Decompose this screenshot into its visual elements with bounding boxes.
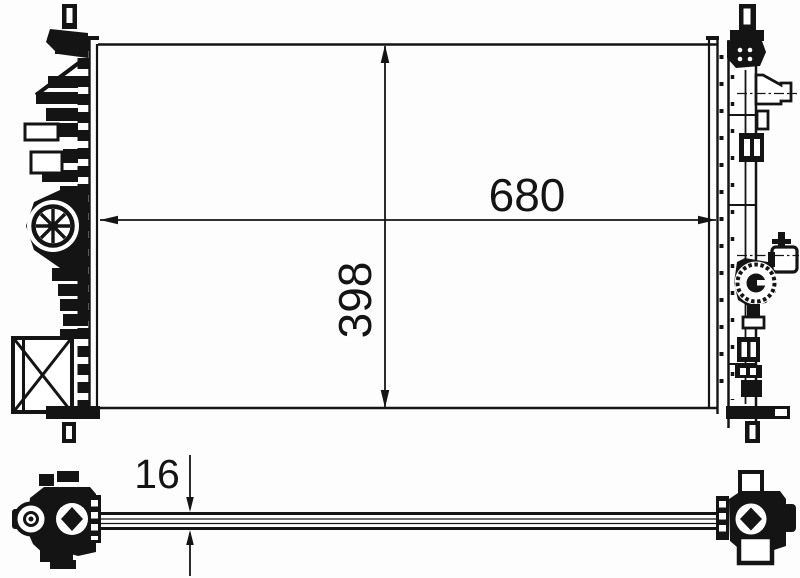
right-cap-port <box>783 504 796 532</box>
height-dimension: 398 <box>329 45 389 408</box>
filler-cap-housing <box>727 41 766 68</box>
right-bracket-a <box>739 133 764 162</box>
right-tank-tab-b <box>743 317 764 328</box>
left-cap-port <box>16 504 47 535</box>
width-dimension-label: 680 <box>489 169 566 221</box>
right-sensor-mount <box>768 232 797 272</box>
left-end-cap <box>12 471 101 569</box>
left-tank-pocket-b <box>31 152 62 173</box>
filler-neck <box>730 4 764 41</box>
height-dimension-label: 398 <box>329 262 381 339</box>
right-end-cap <box>716 472 796 563</box>
left-tank-pocket-a <box>25 124 58 140</box>
radiator-technical-drawing: 680 398 <box>0 0 800 578</box>
core-band <box>100 514 717 529</box>
arrow-up-icon <box>381 45 390 63</box>
arrow-left-icon <box>100 216 118 224</box>
left-hose-port <box>26 190 88 268</box>
technical-drawing-page: 680 398 <box>0 0 800 578</box>
left-cap-fitting <box>56 503 88 535</box>
thickness-dimension-label: 16 <box>134 451 180 497</box>
left-tank <box>13 4 100 443</box>
arrow-down-icon <box>186 497 194 512</box>
radiator-core <box>87 36 722 414</box>
right-bracket-b <box>737 337 760 362</box>
right-cap-neck <box>740 472 762 493</box>
front-view: 680 398 <box>13 4 799 443</box>
right-bottom-mount-pin <box>745 421 760 443</box>
right-tank-tab-a <box>757 111 768 129</box>
right-cap-clamp <box>716 496 729 540</box>
left-cap-clamp <box>88 495 101 543</box>
left-top-mount-pin <box>62 4 77 29</box>
arrow-up-icon <box>186 530 194 545</box>
arrow-right-icon <box>698 216 716 224</box>
left-side-plate <box>87 36 99 414</box>
right-tank-foot <box>726 406 790 419</box>
right-bracket-c <box>735 365 762 397</box>
width-dimension: 680 <box>100 169 716 224</box>
right-cap-fitting <box>736 504 767 535</box>
side-view: 16 <box>12 451 796 576</box>
right-side-plate <box>706 36 722 414</box>
right-cap-foot <box>739 537 772 563</box>
left-tank-foot <box>46 406 100 419</box>
arrow-down-icon <box>381 390 390 408</box>
left-bottom-mount-pin <box>62 422 76 443</box>
right-tank <box>726 4 799 443</box>
left-bottom-bracket <box>13 338 72 412</box>
